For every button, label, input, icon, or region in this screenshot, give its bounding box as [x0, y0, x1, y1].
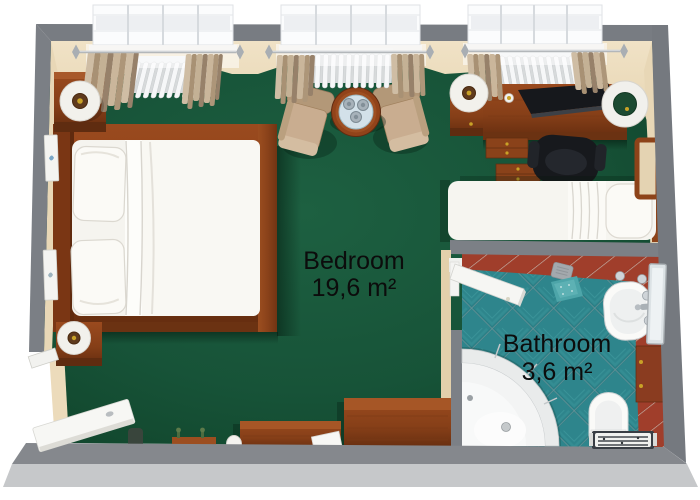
svg-text:3,6 m²: 3,6 m² — [522, 358, 593, 386]
svg-text:19,6 m²: 19,6 m² — [312, 274, 397, 302]
svg-text:Bathroom: Bathroom — [503, 330, 611, 358]
svg-text:Bedroom: Bedroom — [303, 247, 404, 275]
